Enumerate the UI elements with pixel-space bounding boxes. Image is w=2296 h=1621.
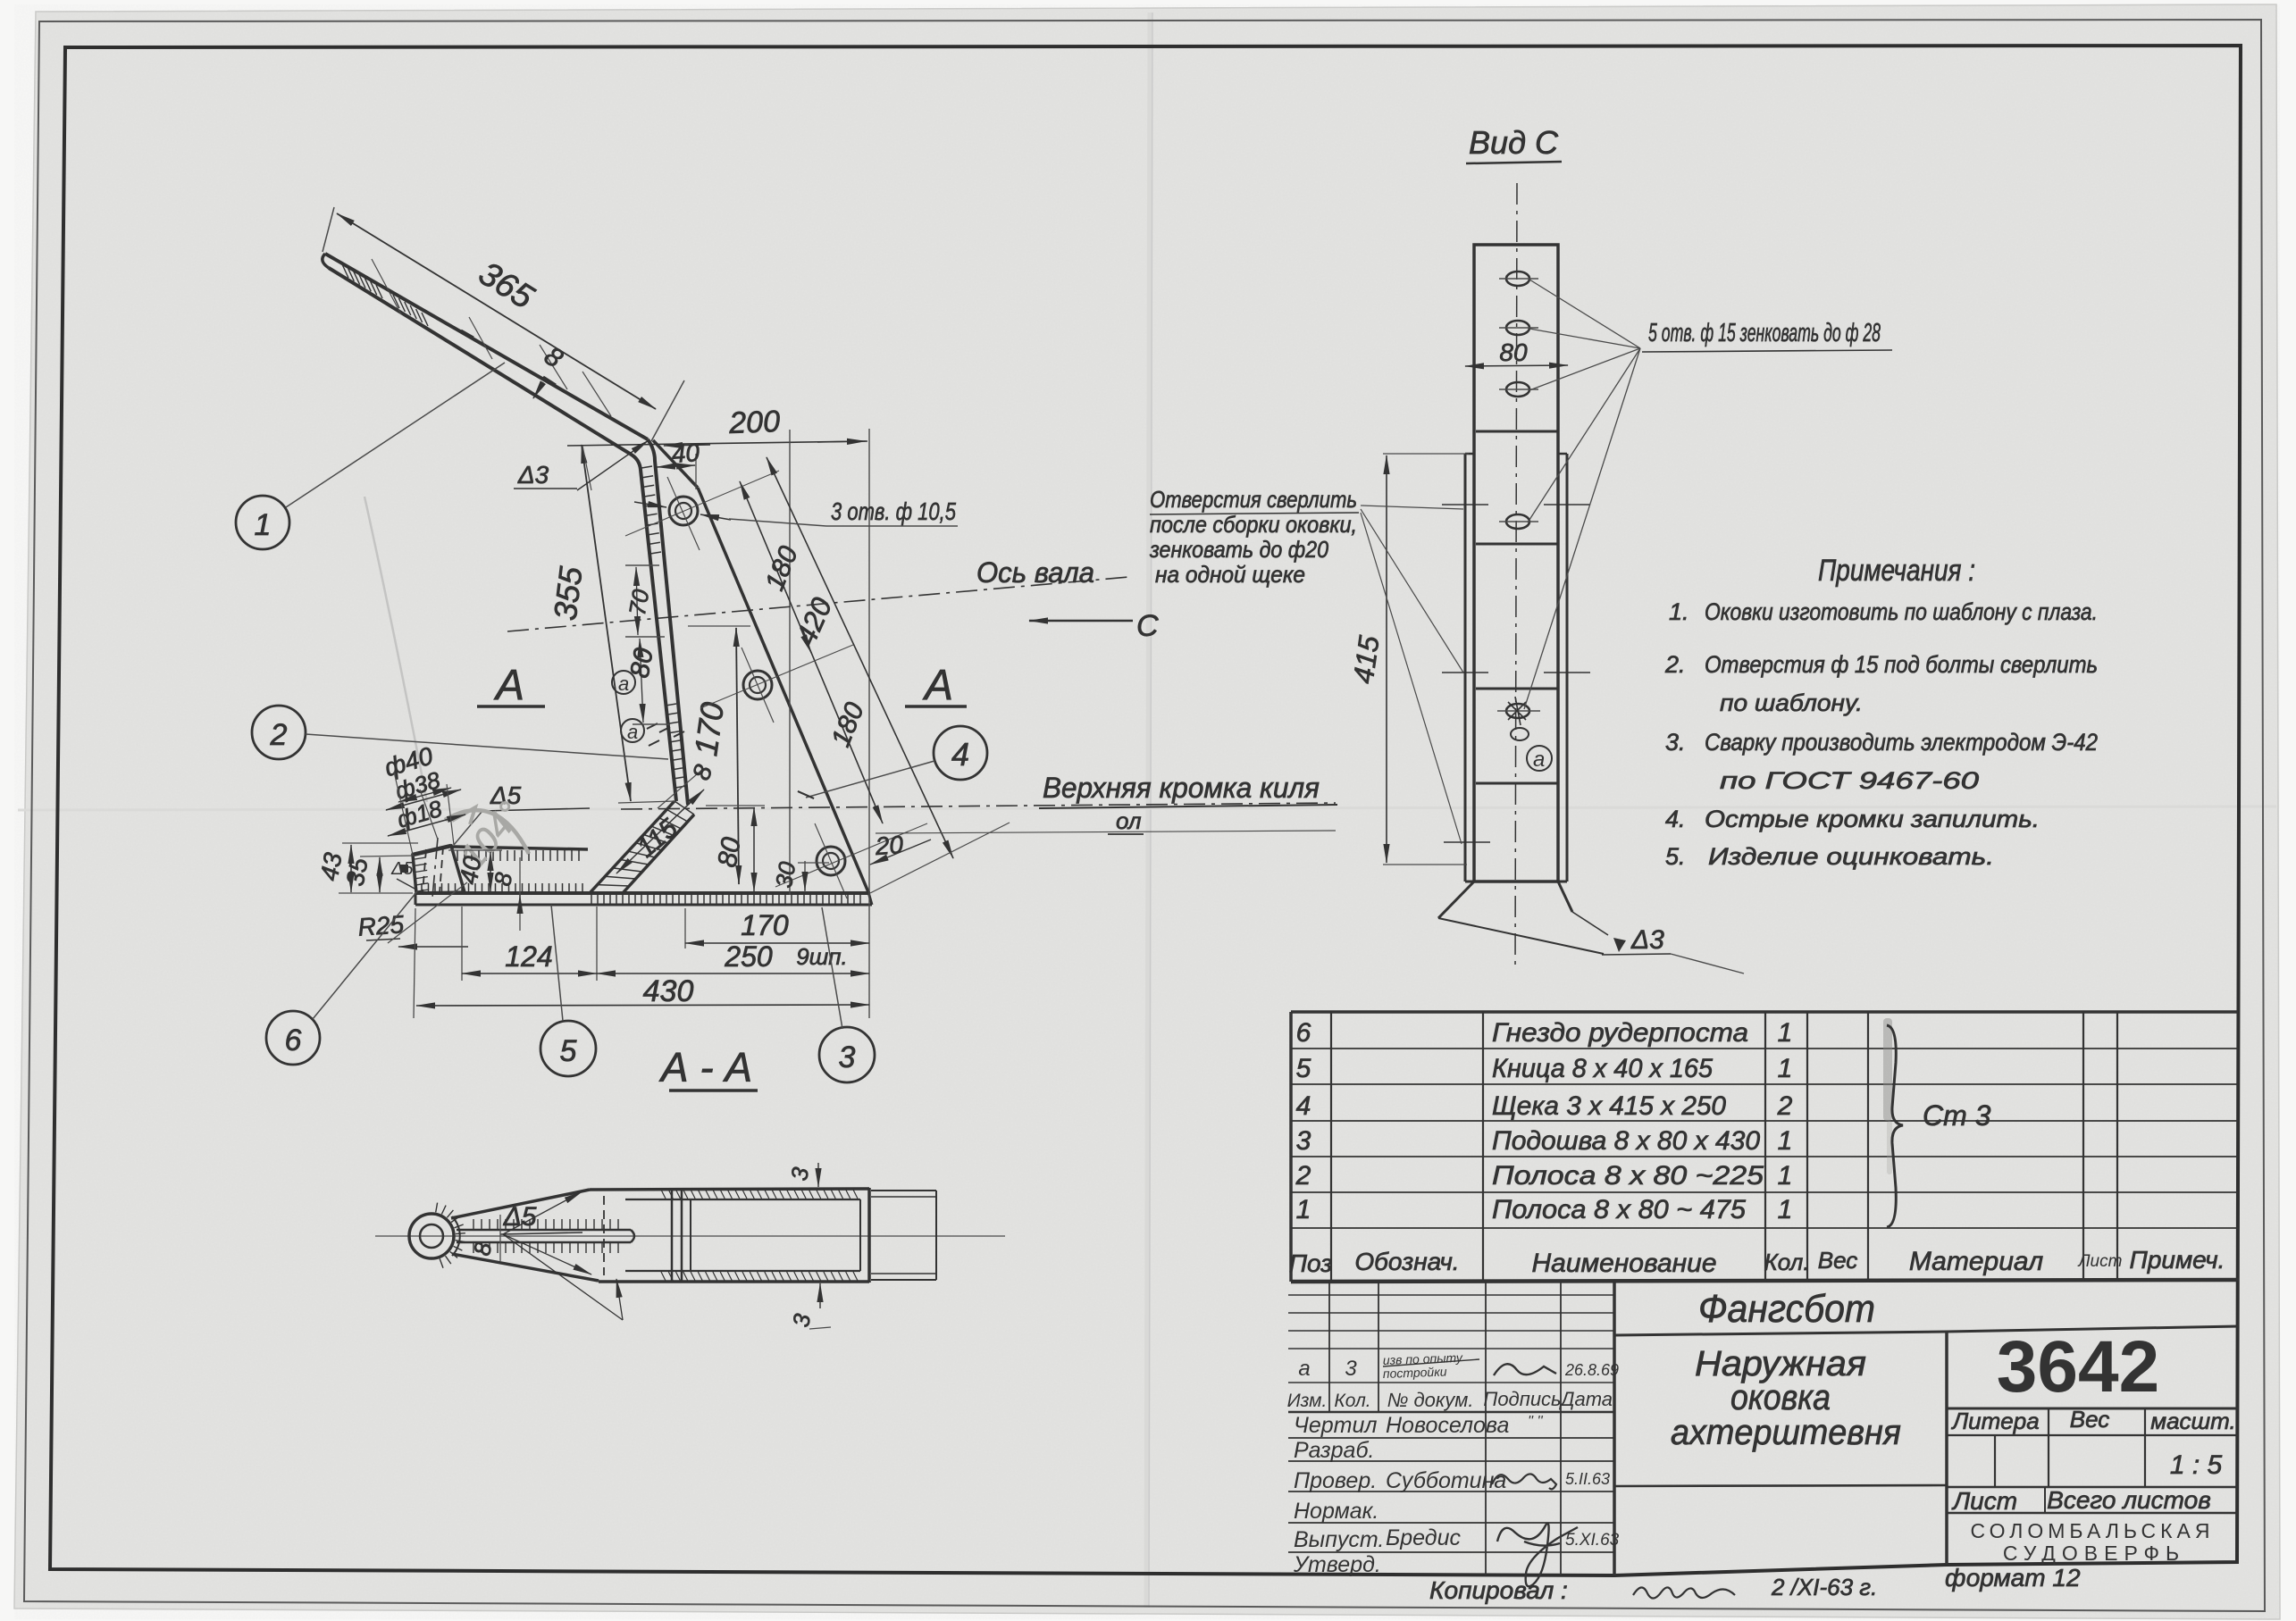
svg-text:Подпись: Подпись (1483, 1388, 1561, 1410)
svg-text:Щека 3 х 415 х 250: Щека 3 х 415 х 250 (1492, 1091, 1726, 1121)
svg-text:Оковки изготовить по шаблону с: Оковки изготовить по шаблону с плаза. (1705, 598, 2098, 625)
svg-text:Δ5: Δ5 (503, 1202, 537, 1232)
svg-text:Примеч.: Примеч. (2130, 1246, 2225, 1274)
svg-text:1: 1 (1778, 1195, 1793, 1224)
svg-text:постройки: постройки (1383, 1364, 1447, 1381)
svg-text:Наименование: Наименование (1531, 1249, 1716, 1278)
svg-text:415: 415 (1347, 633, 1386, 685)
svg-text:Новоселова: Новоселова (1386, 1413, 1509, 1438)
svg-text:5: 5 (560, 1034, 577, 1068)
svg-text:оковка: оковка (1730, 1378, 1831, 1417)
svg-text:Вес: Вес (2070, 1406, 2110, 1433)
svg-text:2.: 2. (1664, 651, 1686, 678)
svg-text:Фангсбот: Фангсбот (1698, 1287, 1875, 1331)
svg-text:5.: 5. (1665, 843, 1686, 870)
svg-text:1 : 5: 1 : 5 (2170, 1450, 2223, 1480)
svg-text:Острые кромки запилить.: Острые кромки запилить. (1705, 806, 2040, 832)
svg-text:3: 3 (1345, 1357, 1357, 1381)
svg-text:а: а (1298, 1357, 1310, 1381)
svg-text:80: 80 (624, 646, 658, 681)
svg-text:А - А: А - А (658, 1044, 752, 1090)
svg-text:2: 2 (1777, 1091, 1793, 1121)
svg-text:5.II.63: 5.II.63 (1565, 1470, 1610, 1488)
svg-text:Обознач.: Обознач. (1354, 1248, 1459, 1275)
svg-text:Сварку производить электродом: Сварку производить электродом Э-42 (1705, 729, 2098, 756)
svg-text:40: 40 (671, 439, 701, 468)
svg-text:масшт.: масшт. (2150, 1408, 2235, 1434)
svg-text:9шп.: 9шп. (796, 943, 848, 970)
svg-text:5.XI.63: 5.XI.63 (1565, 1531, 1620, 1550)
svg-text:80: 80 (1499, 338, 1528, 366)
svg-text:124: 124 (505, 940, 552, 973)
svg-text:Разраб.: Разраб. (1294, 1438, 1374, 1463)
svg-text:Бредис: Бредис (1386, 1525, 1462, 1550)
svg-text:355: 355 (547, 564, 590, 622)
svg-text:по ГОСТ 9467-60: по ГОСТ 9467-60 (1720, 767, 1979, 794)
svg-text:70: 70 (624, 587, 655, 617)
svg-text:Лист: Лист (2077, 1252, 2123, 1271)
svg-text:2: 2 (1295, 1161, 1311, 1191)
svg-text:30: 30 (770, 859, 801, 890)
svg-text:6: 6 (285, 1024, 302, 1057)
svg-text:3 отв. ф 10,5: 3 отв. ф 10,5 (831, 497, 956, 525)
svg-text:170: 170 (741, 909, 789, 941)
svg-text:Гнездо рудерпоста: Гнездо рудерпоста (1492, 1018, 1748, 1048)
svg-text:Чертил: Чертил (1294, 1413, 1377, 1438)
svg-text:Кница 8 х 40 х 165: Кница 8 х 40 х 165 (1492, 1054, 1713, 1083)
svg-text:Литера: Литера (1950, 1408, 2039, 1434)
svg-text:6: 6 (1296, 1018, 1311, 1048)
svg-text:3642: 3642 (1997, 1326, 2159, 1408)
svg-text:№ докум.: № докум. (1387, 1389, 1474, 1411)
svg-text:2 /XI-63 г.: 2 /XI-63 г. (1771, 1574, 1877, 1600)
svg-text:170: 170 (687, 700, 731, 758)
svg-text:ол: ол (1116, 807, 1142, 834)
svg-text:1: 1 (255, 508, 272, 542)
svg-text:Ст 3: Ст 3 (1923, 1099, 1991, 1132)
svg-text:3.: 3. (1665, 729, 1686, 756)
svg-text:Лист: Лист (1951, 1487, 2017, 1515)
svg-text:на одной щеке: на одной щеке (1155, 561, 1305, 588)
svg-text:80: 80 (712, 835, 746, 870)
svg-text:1: 1 (1778, 1054, 1793, 1083)
svg-text:а: а (1533, 748, 1545, 772)
svg-text:Изделие оцинковать.: Изделие оцинковать. (1708, 843, 1994, 870)
svg-text:Изм.: Изм. (1287, 1391, 1328, 1411)
svg-text:4: 4 (951, 736, 969, 773)
svg-text:1: 1 (1778, 1161, 1793, 1191)
svg-text:5 отв. ф 15 зенковать до ф 28: 5 отв. ф 15 зенковать до ф 28 (1648, 319, 1881, 347)
svg-text:35: 35 (341, 856, 373, 888)
svg-text:4: 4 (1296, 1091, 1311, 1121)
svg-text:СУДОВЕРФЬ: СУДОВЕРФЬ (2003, 1542, 2185, 1565)
svg-text:Отверстия ф 15 под болты сверл: Отверстия ф 15 под болты сверлить (1705, 651, 2098, 678)
svg-text:зенковать до ф20: зенковать до ф20 (1149, 536, 1328, 563)
svg-text:Дата: Дата (1558, 1388, 1613, 1410)
svg-text:Верхняя кромка киля: Верхняя кромка киля (1043, 772, 1320, 804)
svg-text:формат 12: формат 12 (1945, 1564, 2081, 1592)
svg-text:Вес: Вес (1818, 1247, 1858, 1274)
svg-text:А: А (493, 662, 524, 709)
svg-text:Провер.: Провер. (1294, 1468, 1377, 1493)
svg-text:С: С (1136, 609, 1159, 643)
svg-text:Всего листов: Всего листов (2047, 1486, 2211, 1514)
svg-text:250: 250 (724, 940, 773, 973)
svg-text:Вид С: Вид С (1469, 124, 1559, 161)
svg-text:Полоса 8 х 80 ~225: Полоса 8 х 80 ~225 (1492, 1161, 1764, 1191)
svg-text:после сборки оковки,: после сборки оковки, (1150, 511, 1357, 538)
svg-text:20: 20 (874, 831, 905, 860)
svg-text:Копировал :: Копировал : (1429, 1576, 1568, 1604)
svg-text:1: 1 (1296, 1195, 1311, 1224)
svg-text:Нормак.: Нормак. (1294, 1499, 1378, 1524)
svg-text:1: 1 (1778, 1018, 1793, 1048)
svg-text:ахтерштевня: ахтерштевня (1671, 1413, 1901, 1452)
svg-text:А: А (922, 662, 953, 709)
svg-text:Утверд.: Утверд. (1293, 1552, 1381, 1577)
svg-text:1.: 1. (1669, 598, 1689, 625)
svg-text:Выпуст.: Выпуст. (1294, 1527, 1384, 1552)
svg-text:по шаблону.: по шаблону. (1720, 689, 1863, 716)
svg-text:3: 3 (839, 1040, 856, 1074)
svg-text:'' '': '' '' (1528, 1414, 1544, 1429)
svg-text:Материал: Материал (1909, 1247, 2043, 1276)
svg-text:Поз: Поз (1289, 1249, 1333, 1277)
svg-text:3: 3 (1296, 1126, 1311, 1156)
svg-text:Отверстия сверлить: Отверстия сверлить (1150, 486, 1357, 513)
svg-text:Ось вала: Ось вала (976, 556, 1094, 589)
svg-text:5: 5 (1296, 1054, 1311, 1083)
svg-text:200: 200 (728, 405, 781, 440)
svg-text:Кол.: Кол. (1764, 1249, 1809, 1275)
svg-text:Δ3: Δ3 (517, 461, 549, 489)
svg-text:4.: 4. (1665, 806, 1686, 832)
svg-text:40: 40 (455, 854, 487, 886)
svg-text:430: 430 (643, 974, 694, 1008)
svg-text:Δ3: Δ3 (1630, 925, 1664, 955)
svg-text:Субботина: Субботина (1386, 1468, 1506, 1493)
svg-text:2: 2 (270, 718, 288, 752)
svg-text:26.8.69: 26.8.69 (1564, 1361, 1619, 1379)
svg-text:Полоса 8 х 80 ~ 475: Полоса 8 х 80 ~ 475 (1492, 1195, 1746, 1224)
svg-text:Кол.: Кол. (1334, 1391, 1370, 1411)
svg-text:Подошва 8 х 80 х 430: Подошва 8 х 80 х 430 (1492, 1126, 1760, 1156)
svg-text:1: 1 (1778, 1126, 1793, 1156)
svg-text:СОЛОМБАЛЬСКАЯ: СОЛОМБАЛЬСКАЯ (1971, 1519, 2215, 1542)
svg-text:Примечания :: Примечания : (1818, 554, 1975, 588)
